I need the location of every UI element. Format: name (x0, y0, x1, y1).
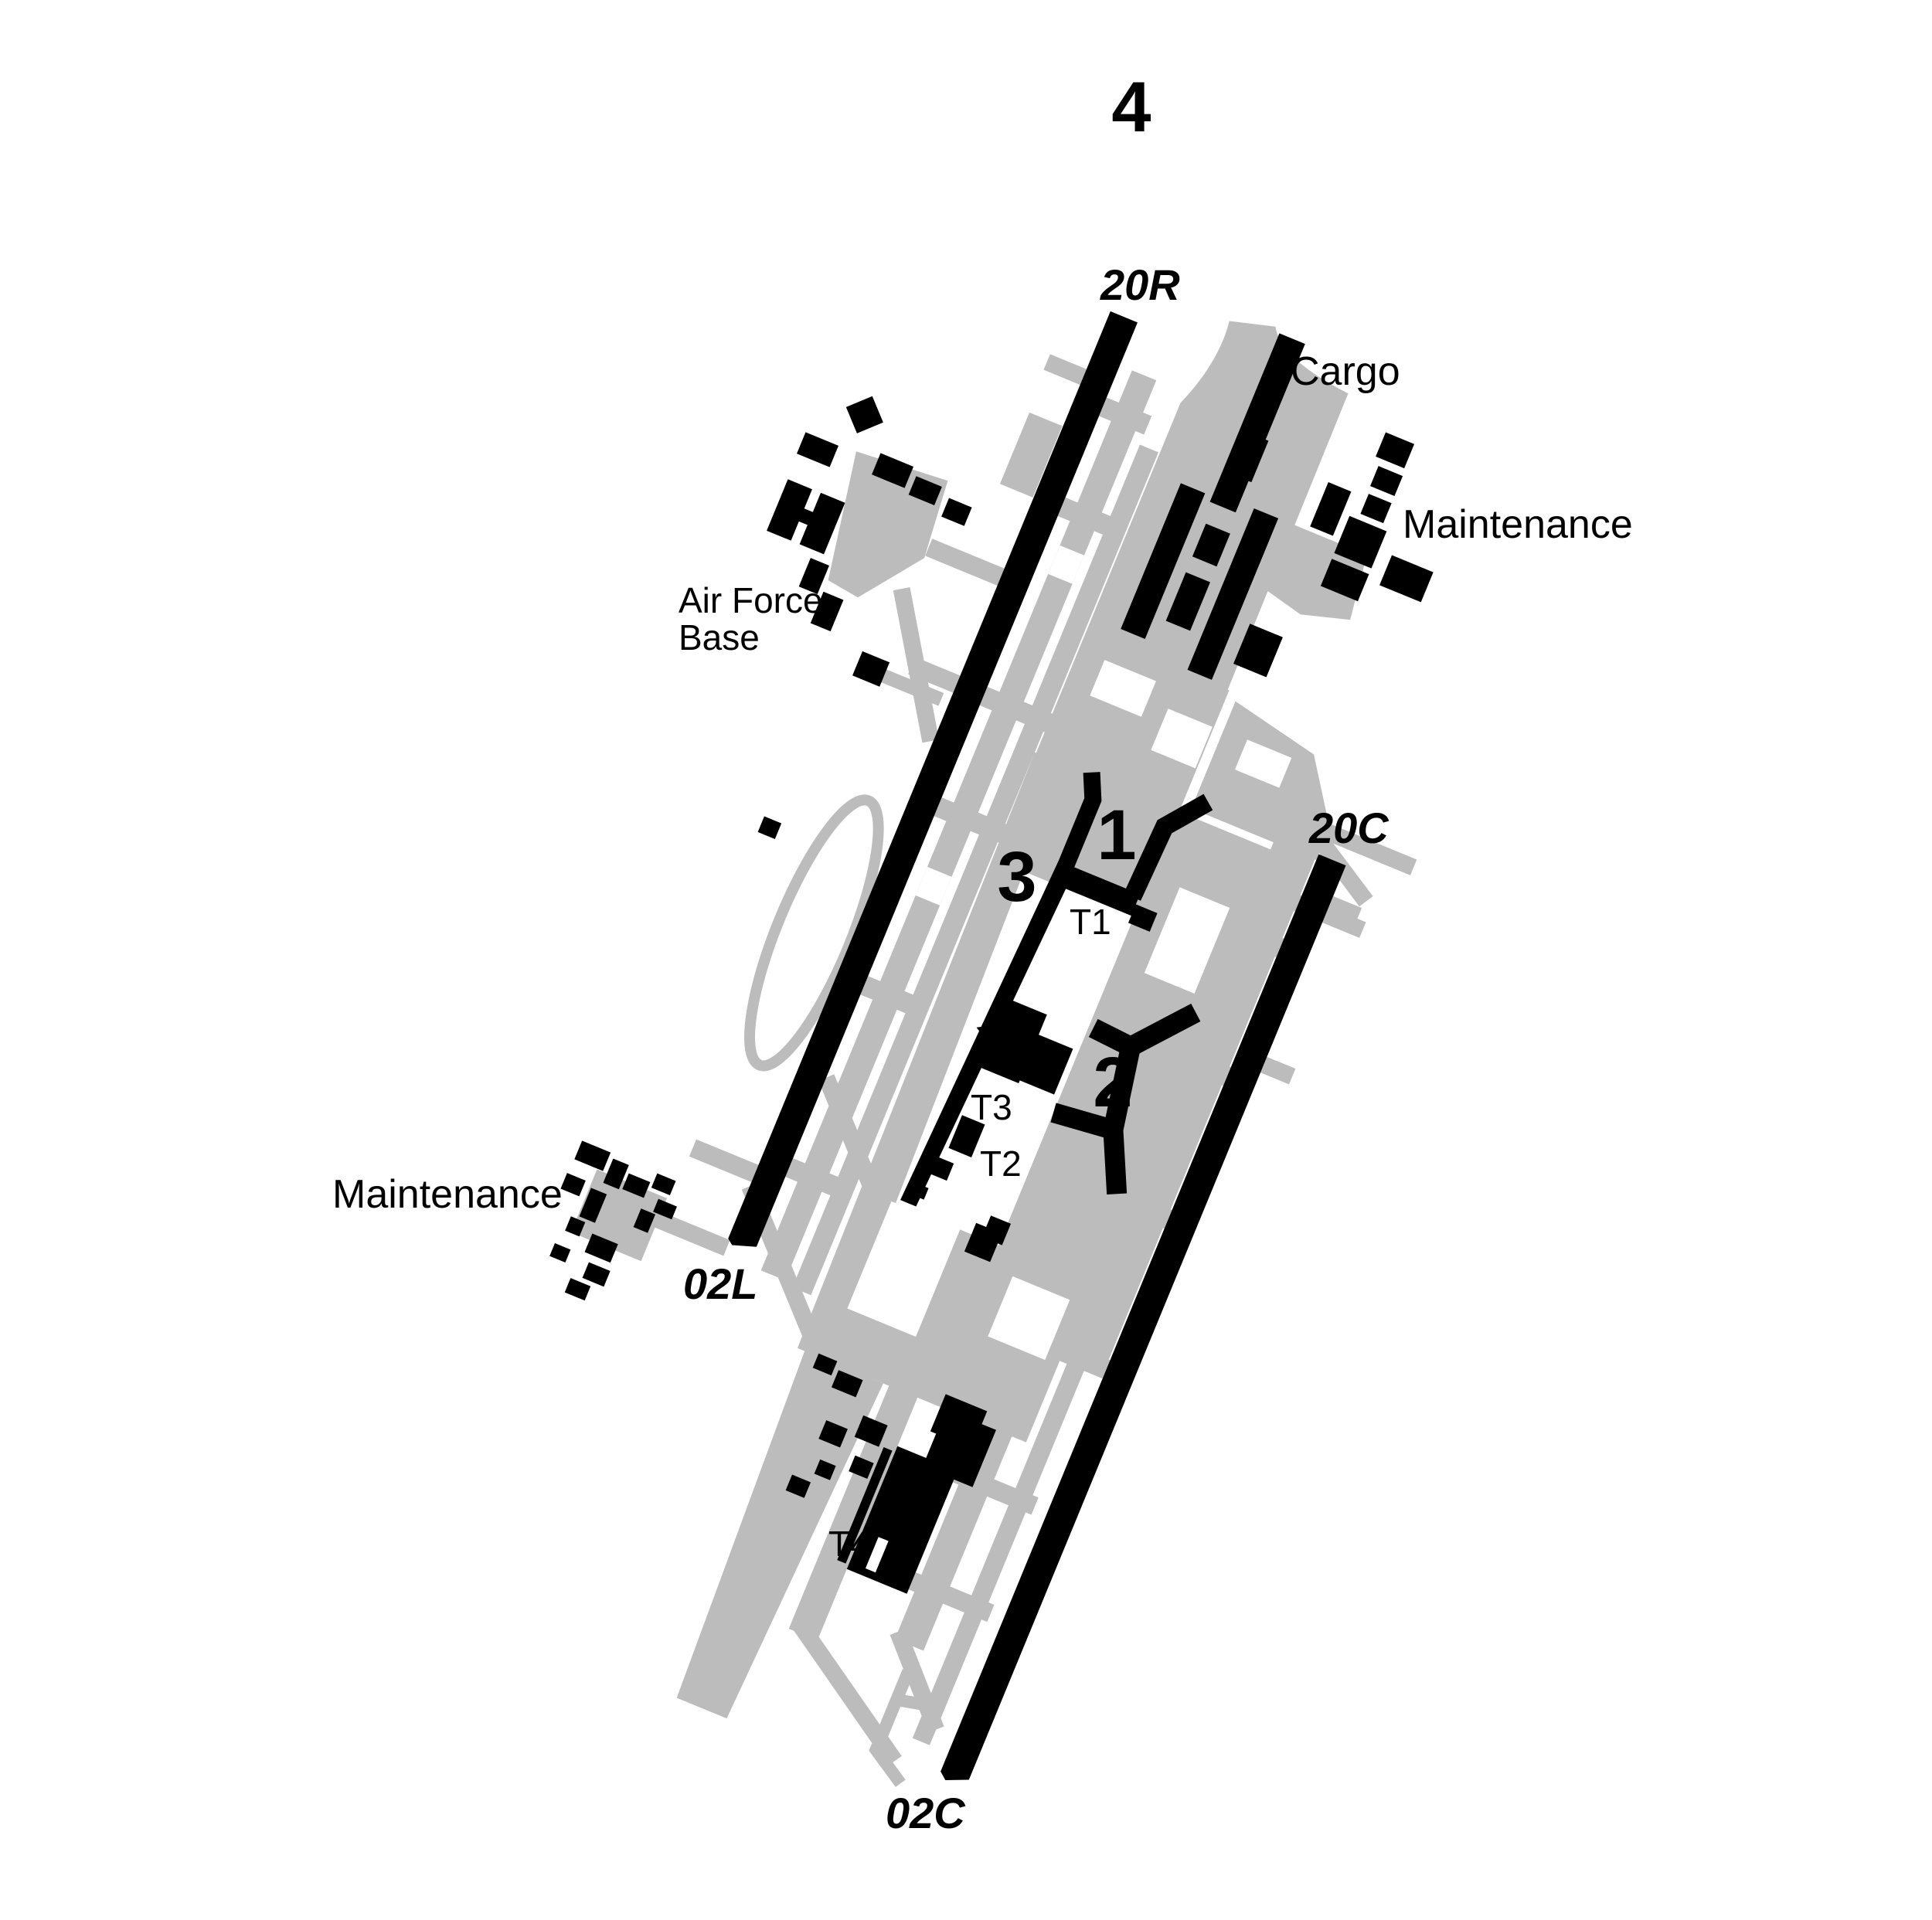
rotated-airfield (341, 176, 1584, 1837)
concourse-1-label: 1 (1097, 796, 1136, 875)
air-force-base-label-line1: Air Force (679, 580, 823, 620)
runway-label-02c: 02C (886, 1789, 966, 1837)
terminal-4-label: T4 (828, 1524, 870, 1564)
runway-label-20c: 20C (1308, 804, 1389, 852)
air-force-base-label-line2: Base (679, 617, 760, 658)
cargo-label: Cargo (1291, 349, 1400, 394)
runway-label-20r: 20R (1100, 260, 1180, 309)
figure-number: 4 (1111, 68, 1151, 147)
concourse-3-label: 3 (997, 838, 1036, 916)
runway-label-02l: 02L (683, 1259, 758, 1308)
terminal-3-label: T3 (971, 1087, 1012, 1127)
terminal-2-label: T2 (980, 1144, 1022, 1184)
terminal-1-label: T1 (1070, 902, 1111, 942)
maintenance-west-label: Maintenance (332, 1172, 563, 1217)
maintenance-northeast-label: Maintenance (1403, 502, 1633, 547)
airport-diagram: 4 20R 02L 20C 02C Cargo Maintenance Main… (0, 0, 1932, 1920)
concourse-2-label: 2 (1093, 1043, 1132, 1122)
